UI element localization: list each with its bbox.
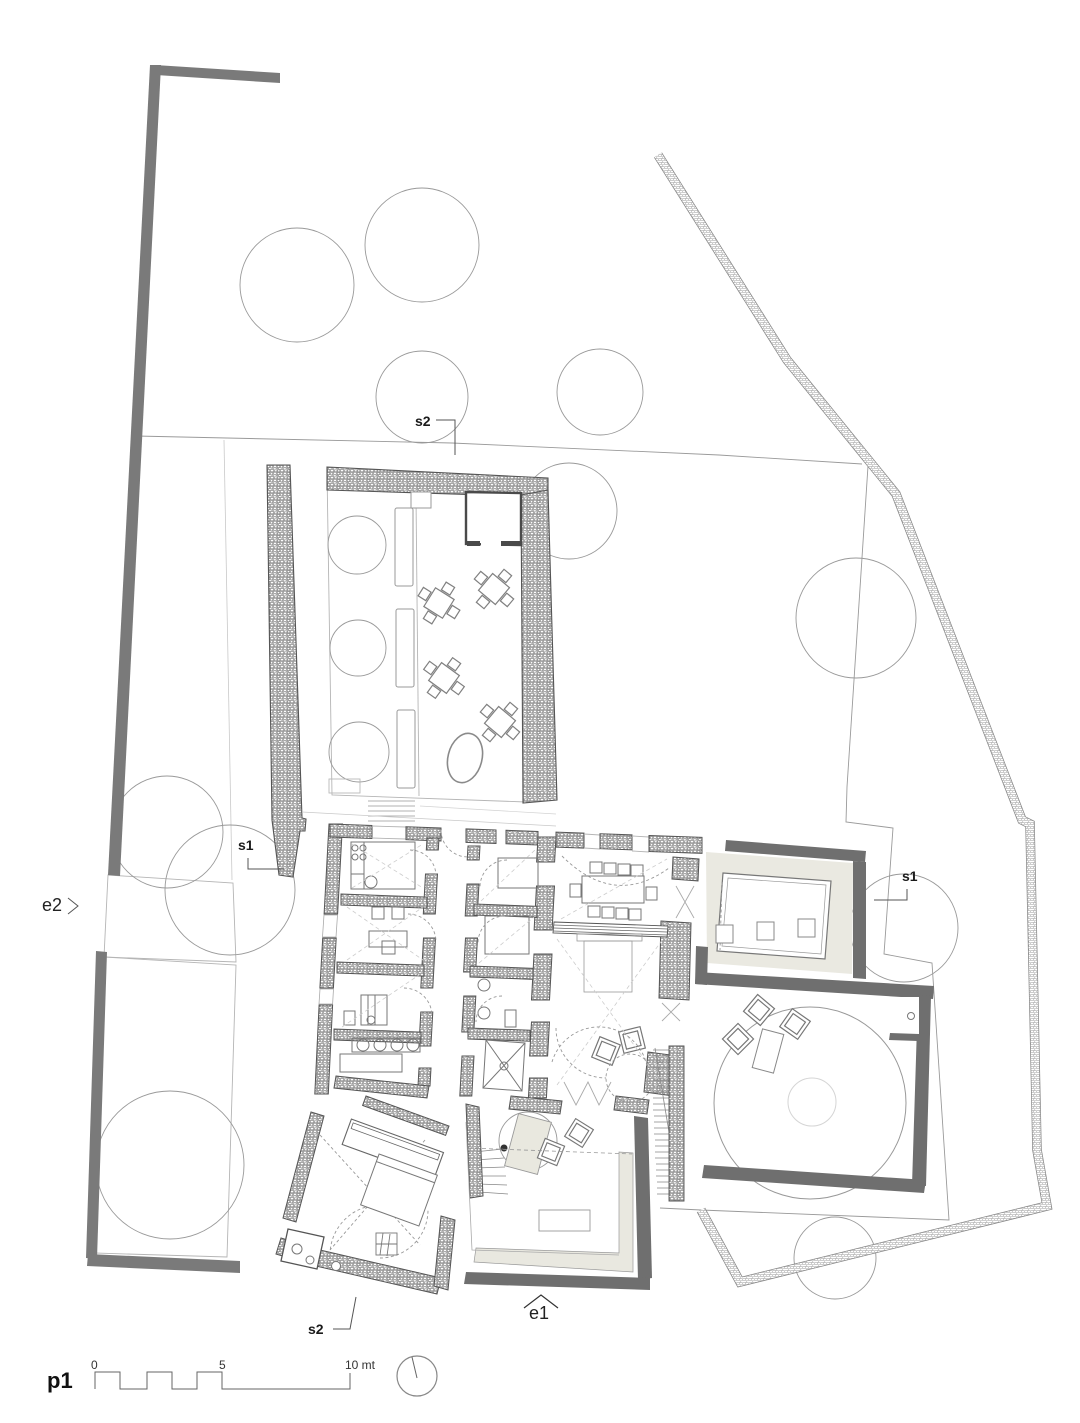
svg-text:0: 0 (91, 1358, 98, 1372)
svg-text:p1: p1 (47, 1368, 73, 1393)
svg-text:10 mt: 10 mt (345, 1358, 376, 1372)
svg-text:s1: s1 (902, 868, 918, 884)
svg-text:5: 5 (219, 1358, 226, 1372)
svg-text:s1: s1 (238, 837, 254, 853)
svg-text:e1: e1 (529, 1303, 549, 1323)
svg-text:s2: s2 (308, 1321, 324, 1337)
svg-text:s2: s2 (415, 413, 431, 429)
svg-text:e2: e2 (42, 895, 62, 915)
